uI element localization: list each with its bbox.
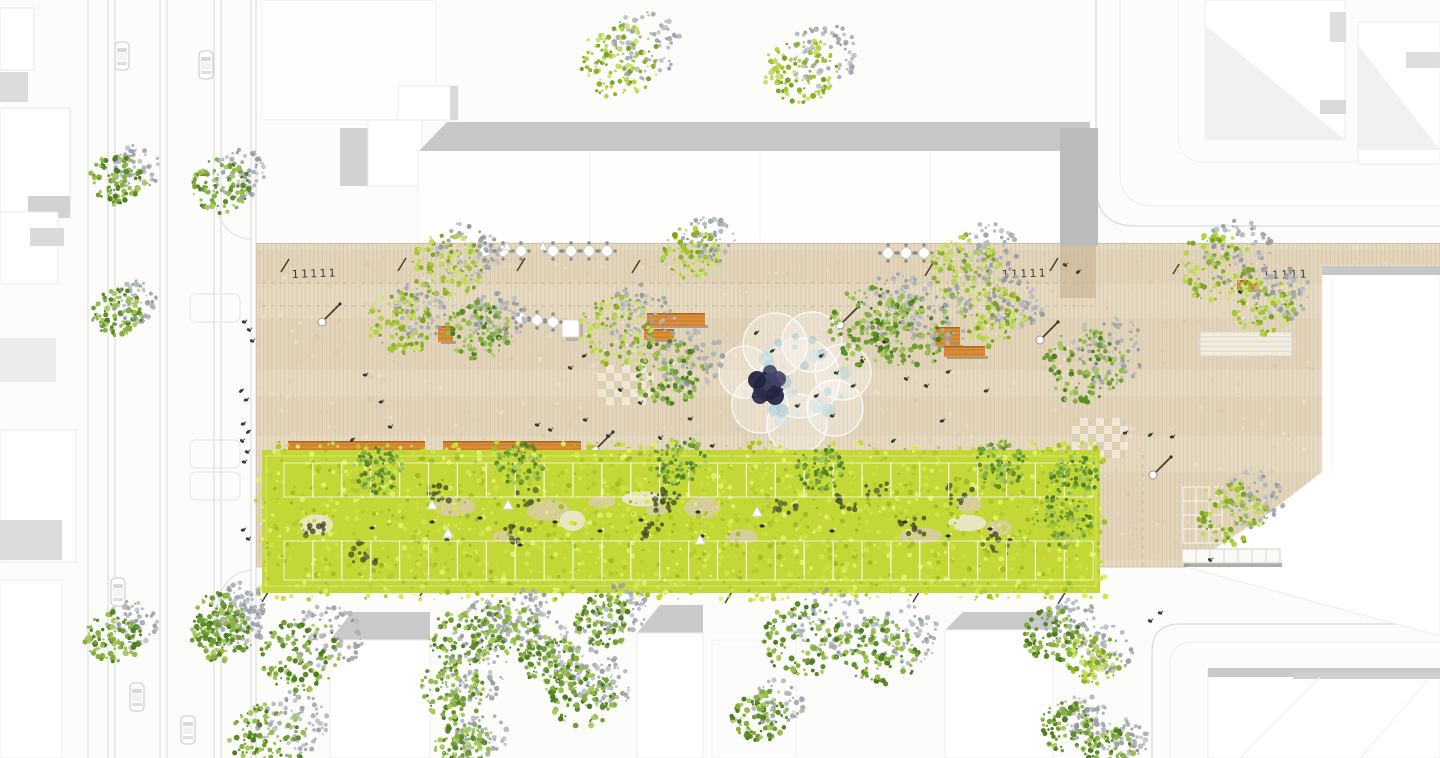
car — [115, 42, 129, 70]
white-bench — [1182, 549, 1282, 567]
site-plan-svg: 111111111111111 — [0, 0, 1440, 758]
car — [199, 51, 213, 79]
site-plan-image: 111111111111111 — [0, 0, 1440, 758]
car — [111, 578, 125, 606]
bike-rack-row: 11111 — [292, 266, 338, 281]
wood-bench — [647, 313, 708, 328]
car — [130, 683, 144, 711]
checker-paving — [598, 365, 654, 405]
wood-bench — [944, 346, 988, 359]
ramp — [1200, 332, 1292, 356]
car — [181, 716, 195, 744]
